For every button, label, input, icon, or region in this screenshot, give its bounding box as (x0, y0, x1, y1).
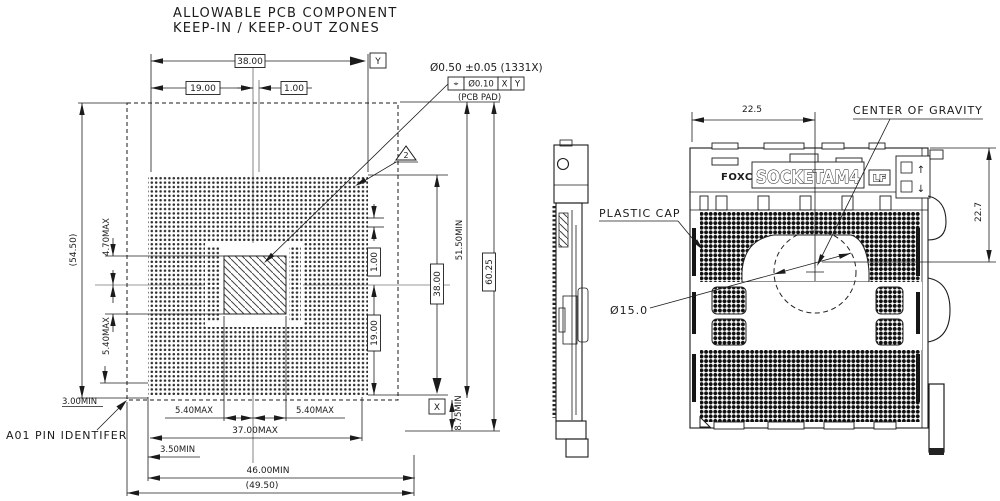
marking-band: FOXCONN SOCKETAM4 LF ↑ ↓ (690, 154, 930, 198)
pin-field (698, 212, 922, 422)
dim-bottom-right: 5.40MAX (296, 406, 334, 416)
pad-grid (148, 175, 368, 395)
pad-size-text: Ø0.50 ±0.05 (1331X) (430, 62, 543, 74)
dim-right-half: 19.00 (370, 320, 380, 346)
dim-top-offset: 1.00 (284, 84, 304, 94)
socket-side-view (554, 140, 588, 457)
gdt-tolerance: Ø0.10 (468, 79, 494, 90)
gdt-position-symbol: ⌖ (454, 80, 459, 90)
pin-identifier-label: A01 PIN IDENTIFER (6, 429, 127, 442)
drawing-title-line1: ALLOWABLE PCB COMPONENT (173, 6, 397, 21)
dim-overall-height: 60.25 (485, 259, 495, 285)
right-dimensions: 1.00 19.00 38.00 X 51.50MIN 8.75MIN (368, 102, 501, 431)
lever-handle (929, 384, 944, 452)
engineering-drawing: ALLOWABLE PCB COMPONENT KEEP-IN / KEEP-O… (0, 0, 1000, 501)
dim-keepin-top: 4.70MAX (102, 218, 112, 256)
dim-left-overall: (54.50) (69, 234, 79, 267)
dim-keepout-min: 51.50MIN (455, 220, 465, 261)
socket-top-view: FOXCONN SOCKETAM4 LF ↑ ↓ (599, 104, 996, 455)
dim-top-half: 19.00 (190, 84, 216, 94)
dim-right-width: 38.00 (433, 271, 443, 297)
lever-tip (929, 448, 944, 455)
pcb-pad-note: (PCB PAD) (458, 93, 501, 103)
center-keepout-hatch (224, 256, 286, 314)
pcb-keepout-drawing: ALLOWABLE PCB COMPONENT KEEP-IN / KEEP-O… (6, 6, 543, 496)
drawing-svg: ALLOWABLE PCB COMPONENT KEEP-IN / KEEP-O… (0, 0, 1000, 501)
dim-top-width: 38.00 (237, 57, 263, 67)
dim-component-max: 37.00MAX (232, 426, 278, 436)
flag-note-number: 2 (403, 151, 408, 160)
plastic-cap-label: PLASTIC CAP (599, 207, 681, 220)
top-dimensions: 38.00 Y 19.00 1.00 (151, 53, 386, 172)
datum-y-label: Y (374, 57, 381, 67)
dim-socket-cog: 22.7 (974, 202, 984, 222)
dim-edge-min: 3.50MIN (160, 445, 195, 455)
lever-features (928, 150, 950, 455)
datum-x-arrow (433, 378, 442, 394)
unlock-arrow-icon: ↑ (917, 165, 925, 176)
dim-width-min: 46.00MIN (247, 466, 290, 476)
cap-diameter-label: Ø15.0 (610, 304, 648, 317)
drawing-title-line2: KEEP-IN / KEEP-OUT ZONES (173, 21, 380, 36)
flag-note: 2 (355, 146, 418, 186)
dim-bottom-left: 5.40MAX (175, 406, 213, 416)
plastic-cap-callout: PLASTIC CAP (599, 207, 703, 250)
cog-label: CENTER OF GRAVITY (853, 104, 983, 117)
dim-socket-half: 22.5 (742, 105, 762, 115)
model-marking: SOCKETAM4 (756, 167, 860, 188)
dim-bottom-margin: 3.00MIN (62, 397, 97, 407)
dim-keepin-bottom: 5.40MAX (102, 317, 112, 355)
dim-overall-width: (49.50) (246, 481, 279, 491)
lf-marking: LF (873, 174, 886, 185)
band-posts (690, 196, 928, 210)
gdt-datum-2: Y (514, 80, 521, 90)
plastic-cap-arch (742, 235, 869, 282)
lock-indicator-box: ↑ ↓ (896, 156, 930, 198)
datum-y-arrow (350, 57, 366, 66)
lock-arrow-icon: ↓ (917, 184, 925, 195)
dim-bottom-clear: 8.75MIN (454, 395, 464, 430)
dim-right-offset: 1.00 (370, 252, 380, 272)
datum-x-label: X (434, 403, 440, 413)
gdt-datum-1: X (502, 80, 508, 90)
